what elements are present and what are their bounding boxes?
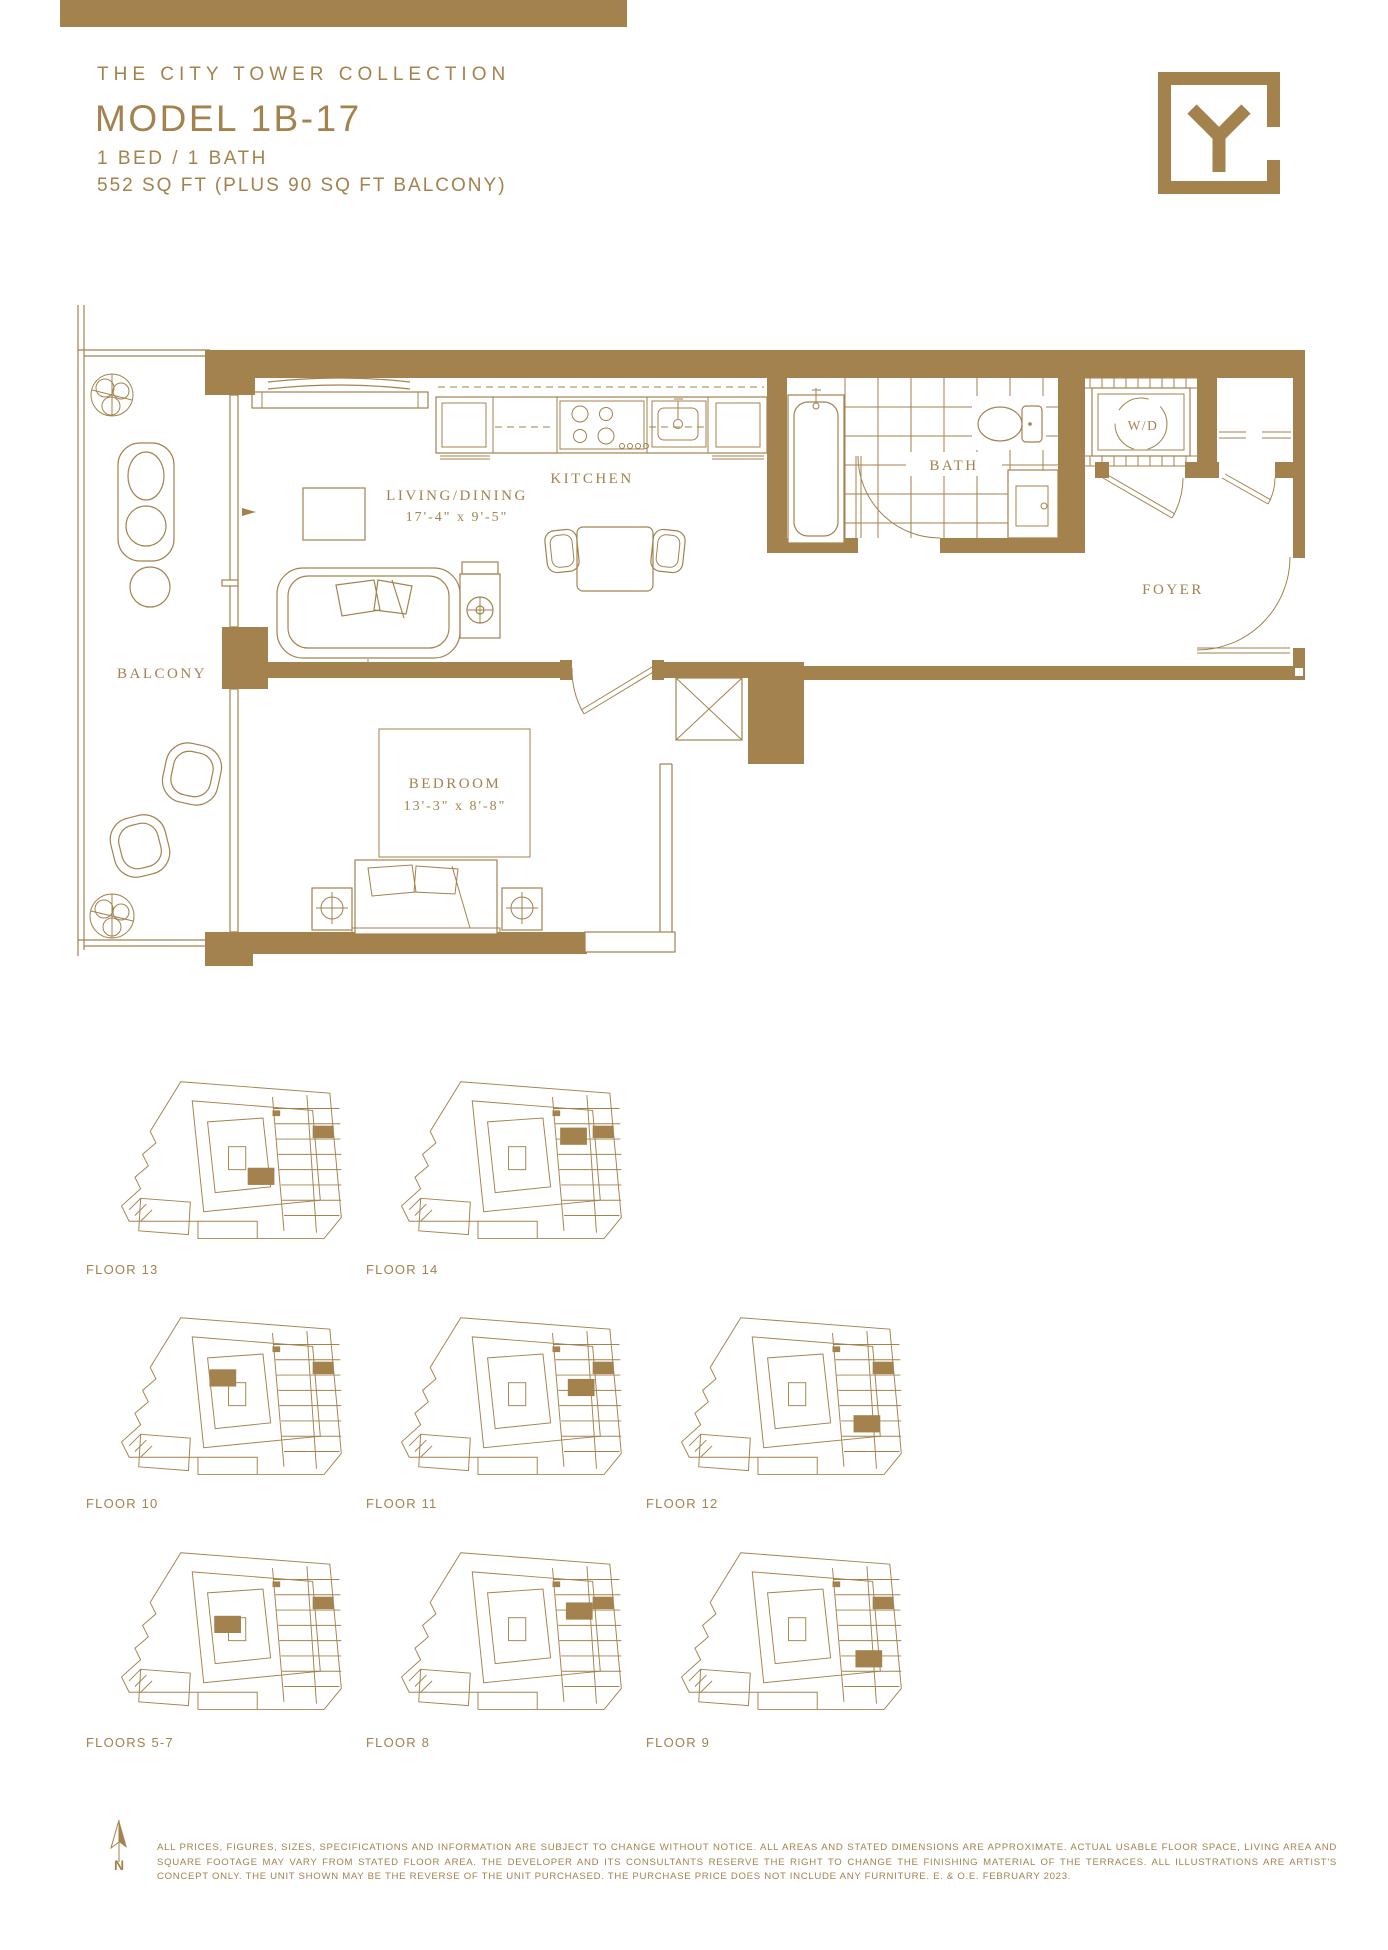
model-title: MODEL 1B-17	[95, 98, 362, 140]
side-table-fan	[460, 562, 500, 638]
dining-set	[544, 527, 686, 591]
foyer-label: FOYER	[1142, 582, 1204, 598]
bedroom-furniture	[312, 729, 542, 936]
closet-door	[1222, 474, 1275, 504]
media-console	[252, 392, 428, 408]
keyplan-floor-10	[84, 1312, 354, 1484]
shaft	[676, 678, 742, 740]
balcony-tree-top	[91, 374, 133, 416]
collection-title: THE CITY TOWER COLLECTION	[97, 64, 510, 86]
stove	[560, 401, 649, 449]
keyplan-label-floor-8: FLOOR 8	[366, 1735, 430, 1750]
laundry-door	[1103, 474, 1183, 518]
keyplan-label-floor-11: FLOOR 11	[366, 1496, 438, 1511]
keyplan-floor-14	[364, 1076, 634, 1248]
keyplan-floor-11	[364, 1312, 634, 1484]
balcony-chair-1	[158, 739, 225, 809]
bed-bath-line: 1 BED / 1 BATH	[97, 148, 268, 170]
toilet	[972, 396, 1046, 450]
laundry-label: W/D	[1128, 418, 1159, 433]
keyplan-label-floor-13: FLOOR 13	[86, 1262, 158, 1277]
nightstand-left	[312, 888, 352, 930]
balcony-area	[78, 305, 226, 956]
keyplan-floor-8	[364, 1547, 634, 1719]
vanity	[1008, 470, 1058, 538]
kitchen-label: KITCHEN	[550, 471, 633, 487]
keyplan-label-floor-14: FLOOR 14	[366, 1262, 438, 1277]
area-line: 552 SQ FT (PLUS 90 SQ FT BALCONY)	[97, 175, 507, 197]
living-dims: 17'-4" x 9'-5"	[406, 510, 509, 525]
brand-logo-icon	[1158, 72, 1280, 194]
balcony-chair-2	[106, 810, 175, 882]
fridge	[442, 403, 486, 447]
pantry	[716, 403, 760, 447]
living-label: LIVING/DINING	[386, 488, 528, 504]
bath-label: BATH	[929, 458, 978, 474]
bedroom-dims: 13'-3" x 8'-8"	[404, 799, 507, 814]
keyplan-label-floor-12: FLOOR 12	[646, 1496, 718, 1511]
keyplan-floors-5-7	[84, 1547, 354, 1719]
keyplan-label-floors-5-7: FLOORS 5-7	[86, 1735, 174, 1750]
balcony-label: BALCONY	[117, 666, 207, 682]
coffee-table	[303, 488, 365, 540]
bedroom-label: BEDROOM	[409, 776, 502, 792]
north-arrow-icon: N	[100, 1818, 140, 1890]
balcony-lounge-chair	[118, 443, 174, 561]
floorplan-page: { "colors": { "gold": "#A3824E", "backgr…	[0, 0, 1388, 1950]
sink	[652, 399, 706, 447]
bathtub	[788, 388, 844, 543]
bath-area	[788, 378, 1058, 543]
living-furniture	[252, 378, 686, 672]
keyplan-floor-13	[84, 1076, 354, 1248]
bedroom-closet	[585, 764, 675, 952]
laundry-closet	[1085, 378, 1197, 518]
keyplan-label-floor-9: FLOOR 9	[646, 1735, 710, 1750]
entry-door	[1197, 557, 1290, 653]
rug	[379, 729, 530, 857]
kitchen-area	[436, 387, 767, 459]
keyplan-floor-9	[644, 1547, 914, 1719]
balcony-table	[130, 567, 170, 607]
keyplan-label-floor-10: FLOOR 10	[86, 1496, 158, 1511]
nightstand-right	[502, 888, 542, 930]
main-floorplan: LIVING/DINING 17'-4" x 9'-5" KITCHEN BAT…	[0, 280, 1388, 980]
north-label: N	[114, 1857, 124, 1873]
tv	[268, 378, 410, 389]
disclaimer-text: ALL PRICES, FIGURES, SIZES, SPECIFICATIO…	[157, 1841, 1337, 1885]
sofa	[277, 568, 460, 672]
bedroom-door	[572, 664, 660, 714]
balcony-tree-bottom	[90, 894, 134, 938]
keyplan-floor-12	[644, 1312, 914, 1484]
bed	[352, 860, 500, 936]
header-accent-bar	[60, 0, 627, 27]
